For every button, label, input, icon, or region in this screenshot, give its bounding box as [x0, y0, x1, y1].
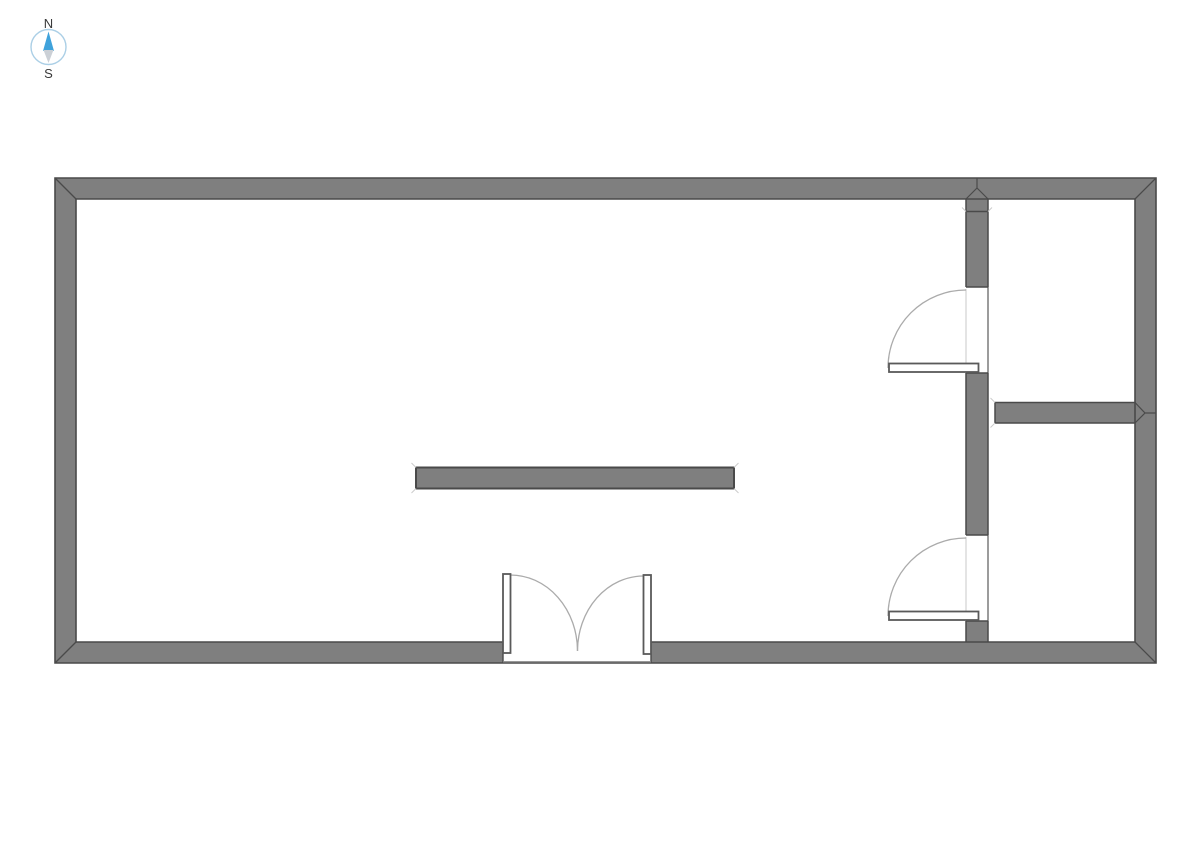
compass-rose: N S [0, 0, 1191, 842]
compass-north-label: N [44, 16, 53, 31]
floor-plan-page: N S [0, 0, 1191, 842]
compass-needle-south-icon [44, 50, 54, 63]
compass-south-label: S [44, 66, 53, 81]
compass-needle-north-icon [43, 32, 54, 52]
